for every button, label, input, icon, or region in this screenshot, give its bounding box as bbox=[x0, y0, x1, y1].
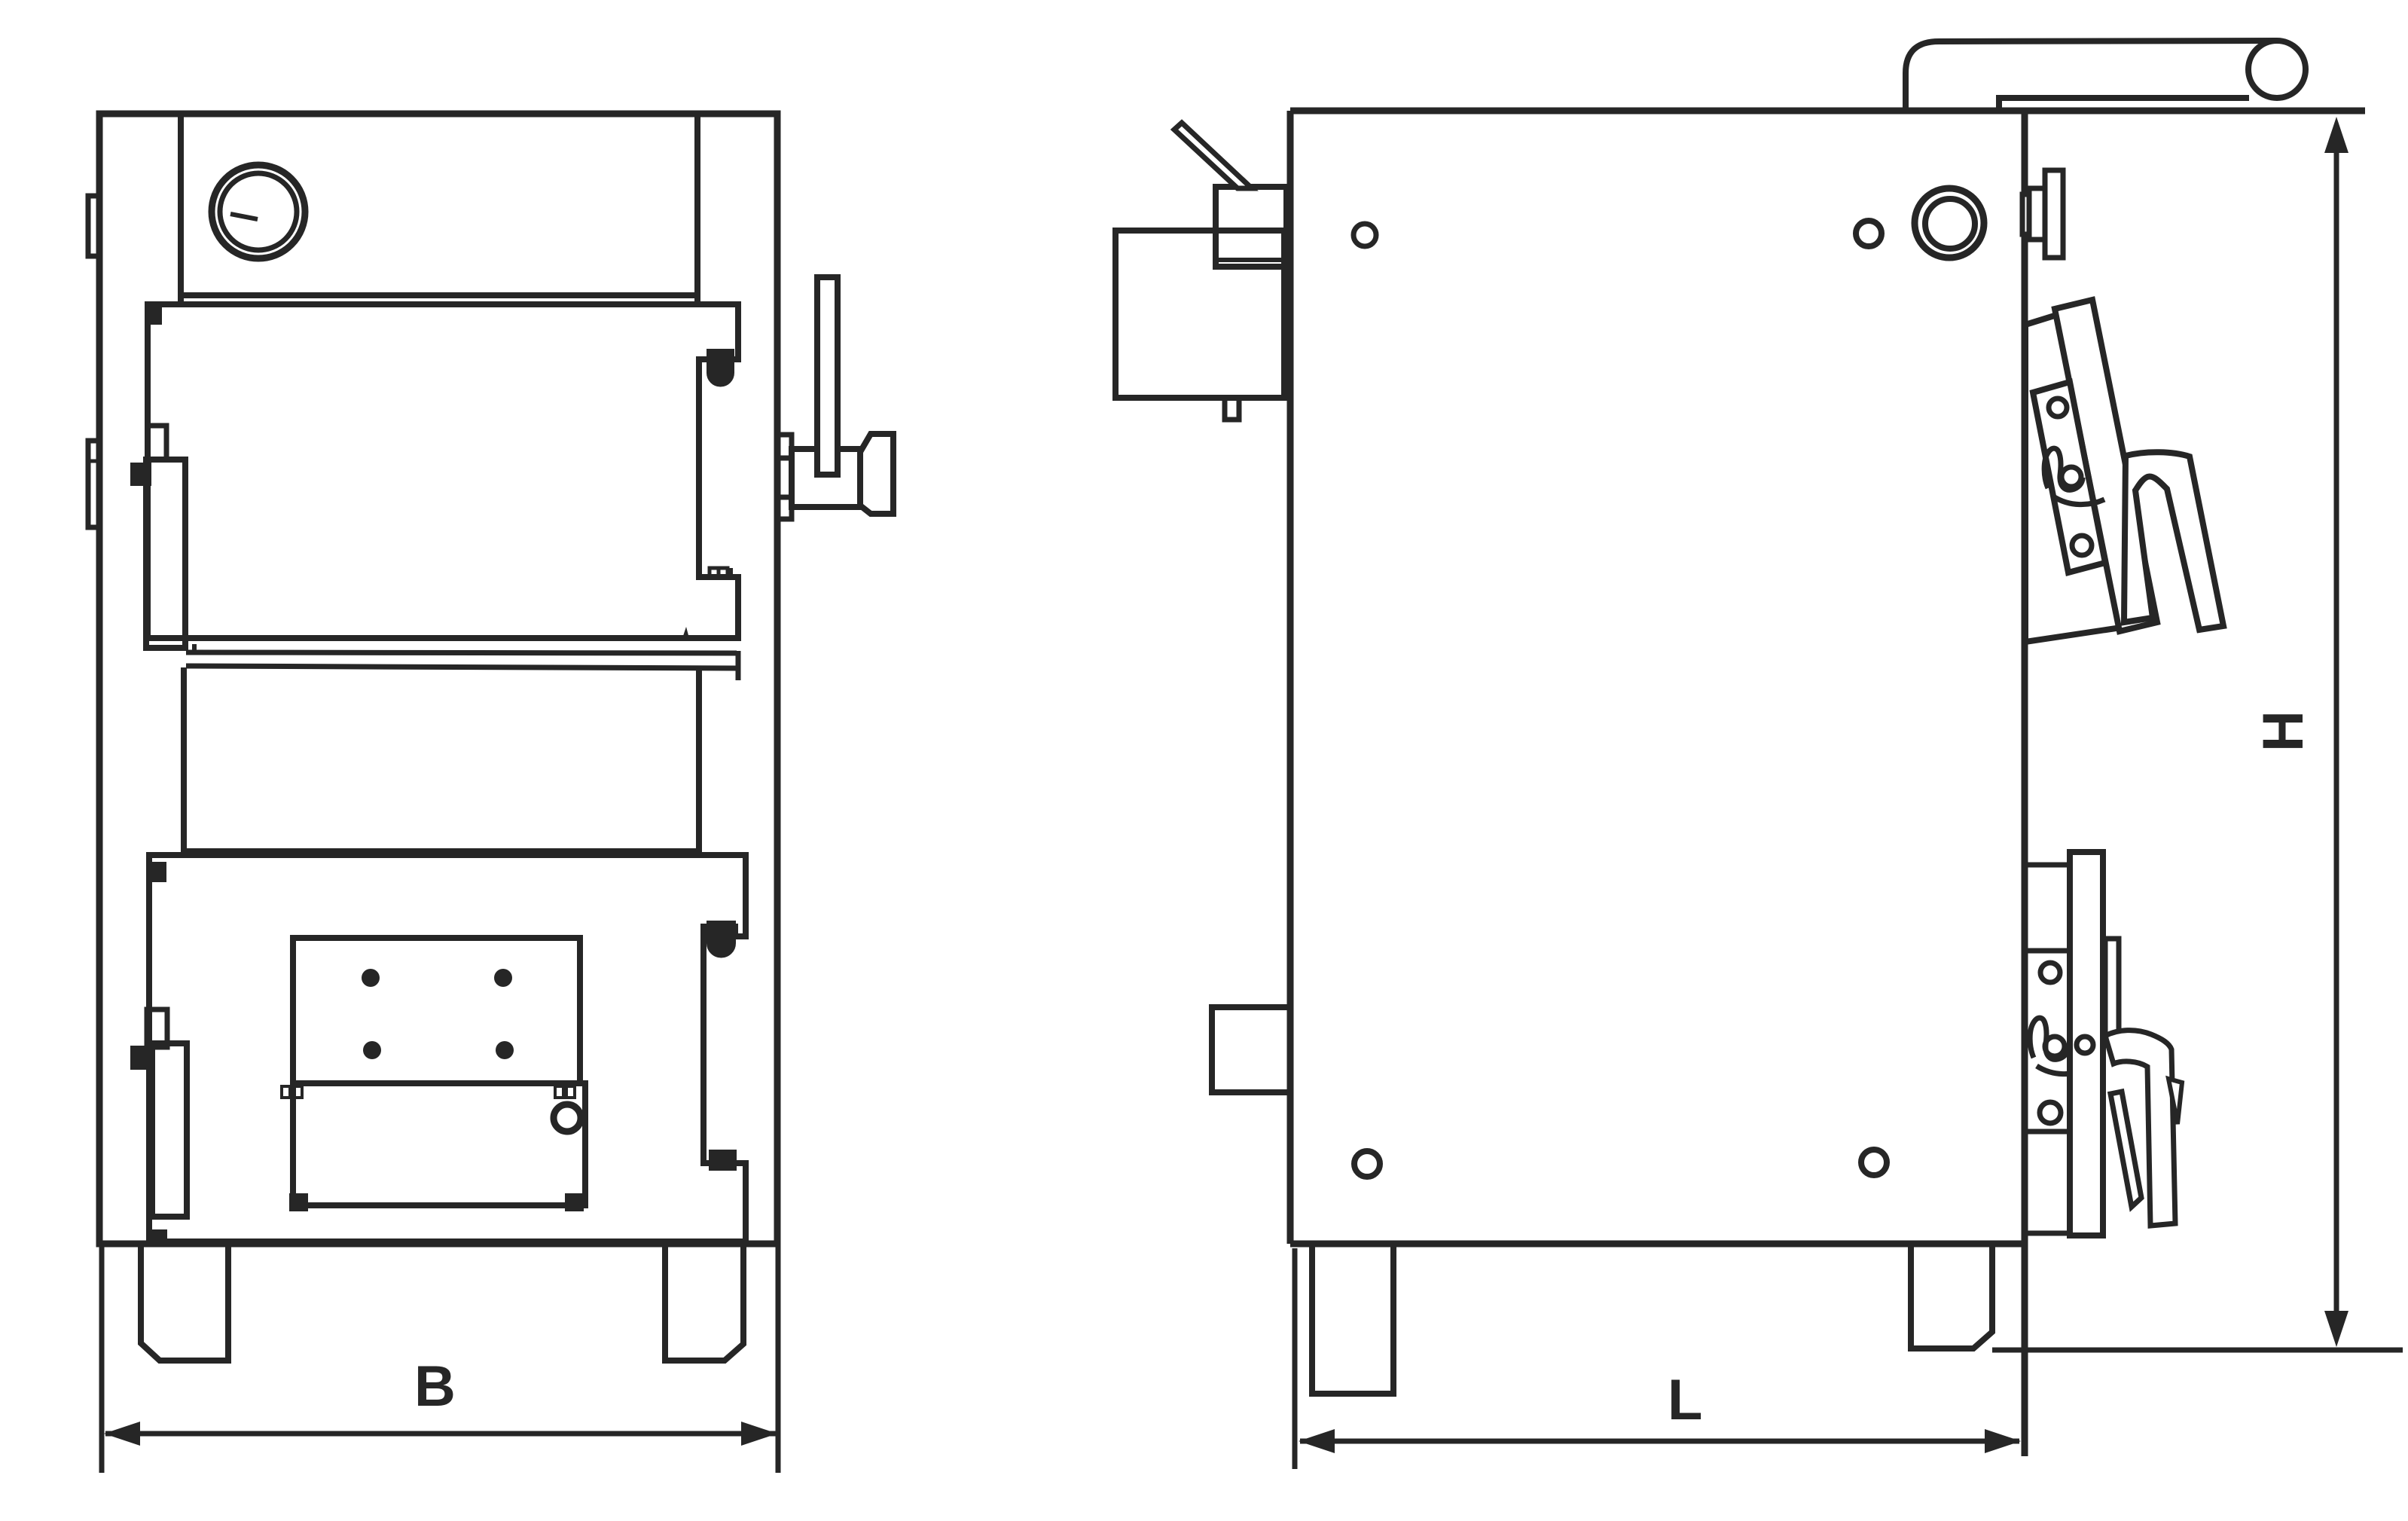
svg-text:L: L bbox=[1668, 1368, 1702, 1432]
svg-text:H: H bbox=[2251, 710, 2315, 752]
svg-text:B: B bbox=[414, 1355, 456, 1419]
